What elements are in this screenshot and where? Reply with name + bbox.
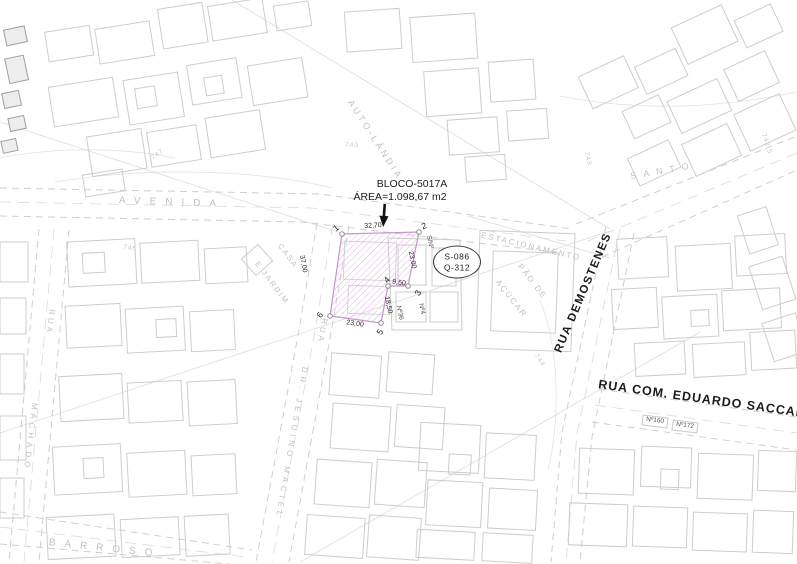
quadra-label: Q-312 — [444, 262, 470, 272]
buildings-dark — [1, 26, 29, 153]
lot-block-label: BLOCO-5017A — [377, 179, 448, 190]
cadastral-map: BLOCO-5017A ÁREA=1.098,67 m2 S-086 Q-312… — [0, 0, 797, 564]
highlighted-lot-polygon — [330, 232, 419, 323]
sector-label: S-086 — [444, 252, 469, 262]
address-n4: Nº4 — [417, 303, 426, 315]
street-machado-prefix: RUA — [44, 309, 55, 336]
dim-top: 32,70 — [364, 222, 382, 230]
street-centerlines — [0, 153, 797, 562]
sector-quadra-badge: S-086 Q-312 — [433, 246, 481, 279]
lot-area-label: ÁREA=1.098,67 m2 — [353, 192, 446, 203]
address-sn: S/Nº — [424, 235, 433, 249]
contour-740: 740 — [345, 142, 359, 149]
